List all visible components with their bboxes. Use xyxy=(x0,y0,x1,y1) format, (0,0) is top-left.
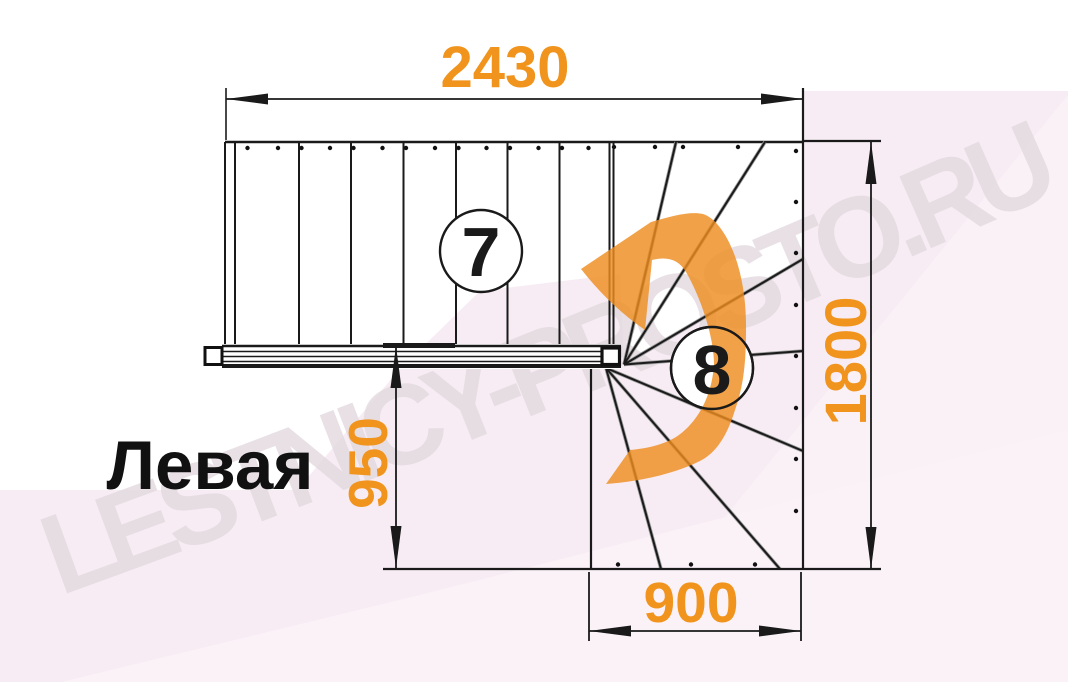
svg-text:900: 900 xyxy=(643,571,738,635)
svg-text:Левая: Левая xyxy=(107,427,314,504)
svg-text:7: 7 xyxy=(462,213,501,291)
svg-text:1800: 1800 xyxy=(814,296,879,425)
svg-text:2430: 2430 xyxy=(440,35,569,100)
svg-text:8: 8 xyxy=(693,331,732,409)
svg-text:950: 950 xyxy=(337,417,399,509)
